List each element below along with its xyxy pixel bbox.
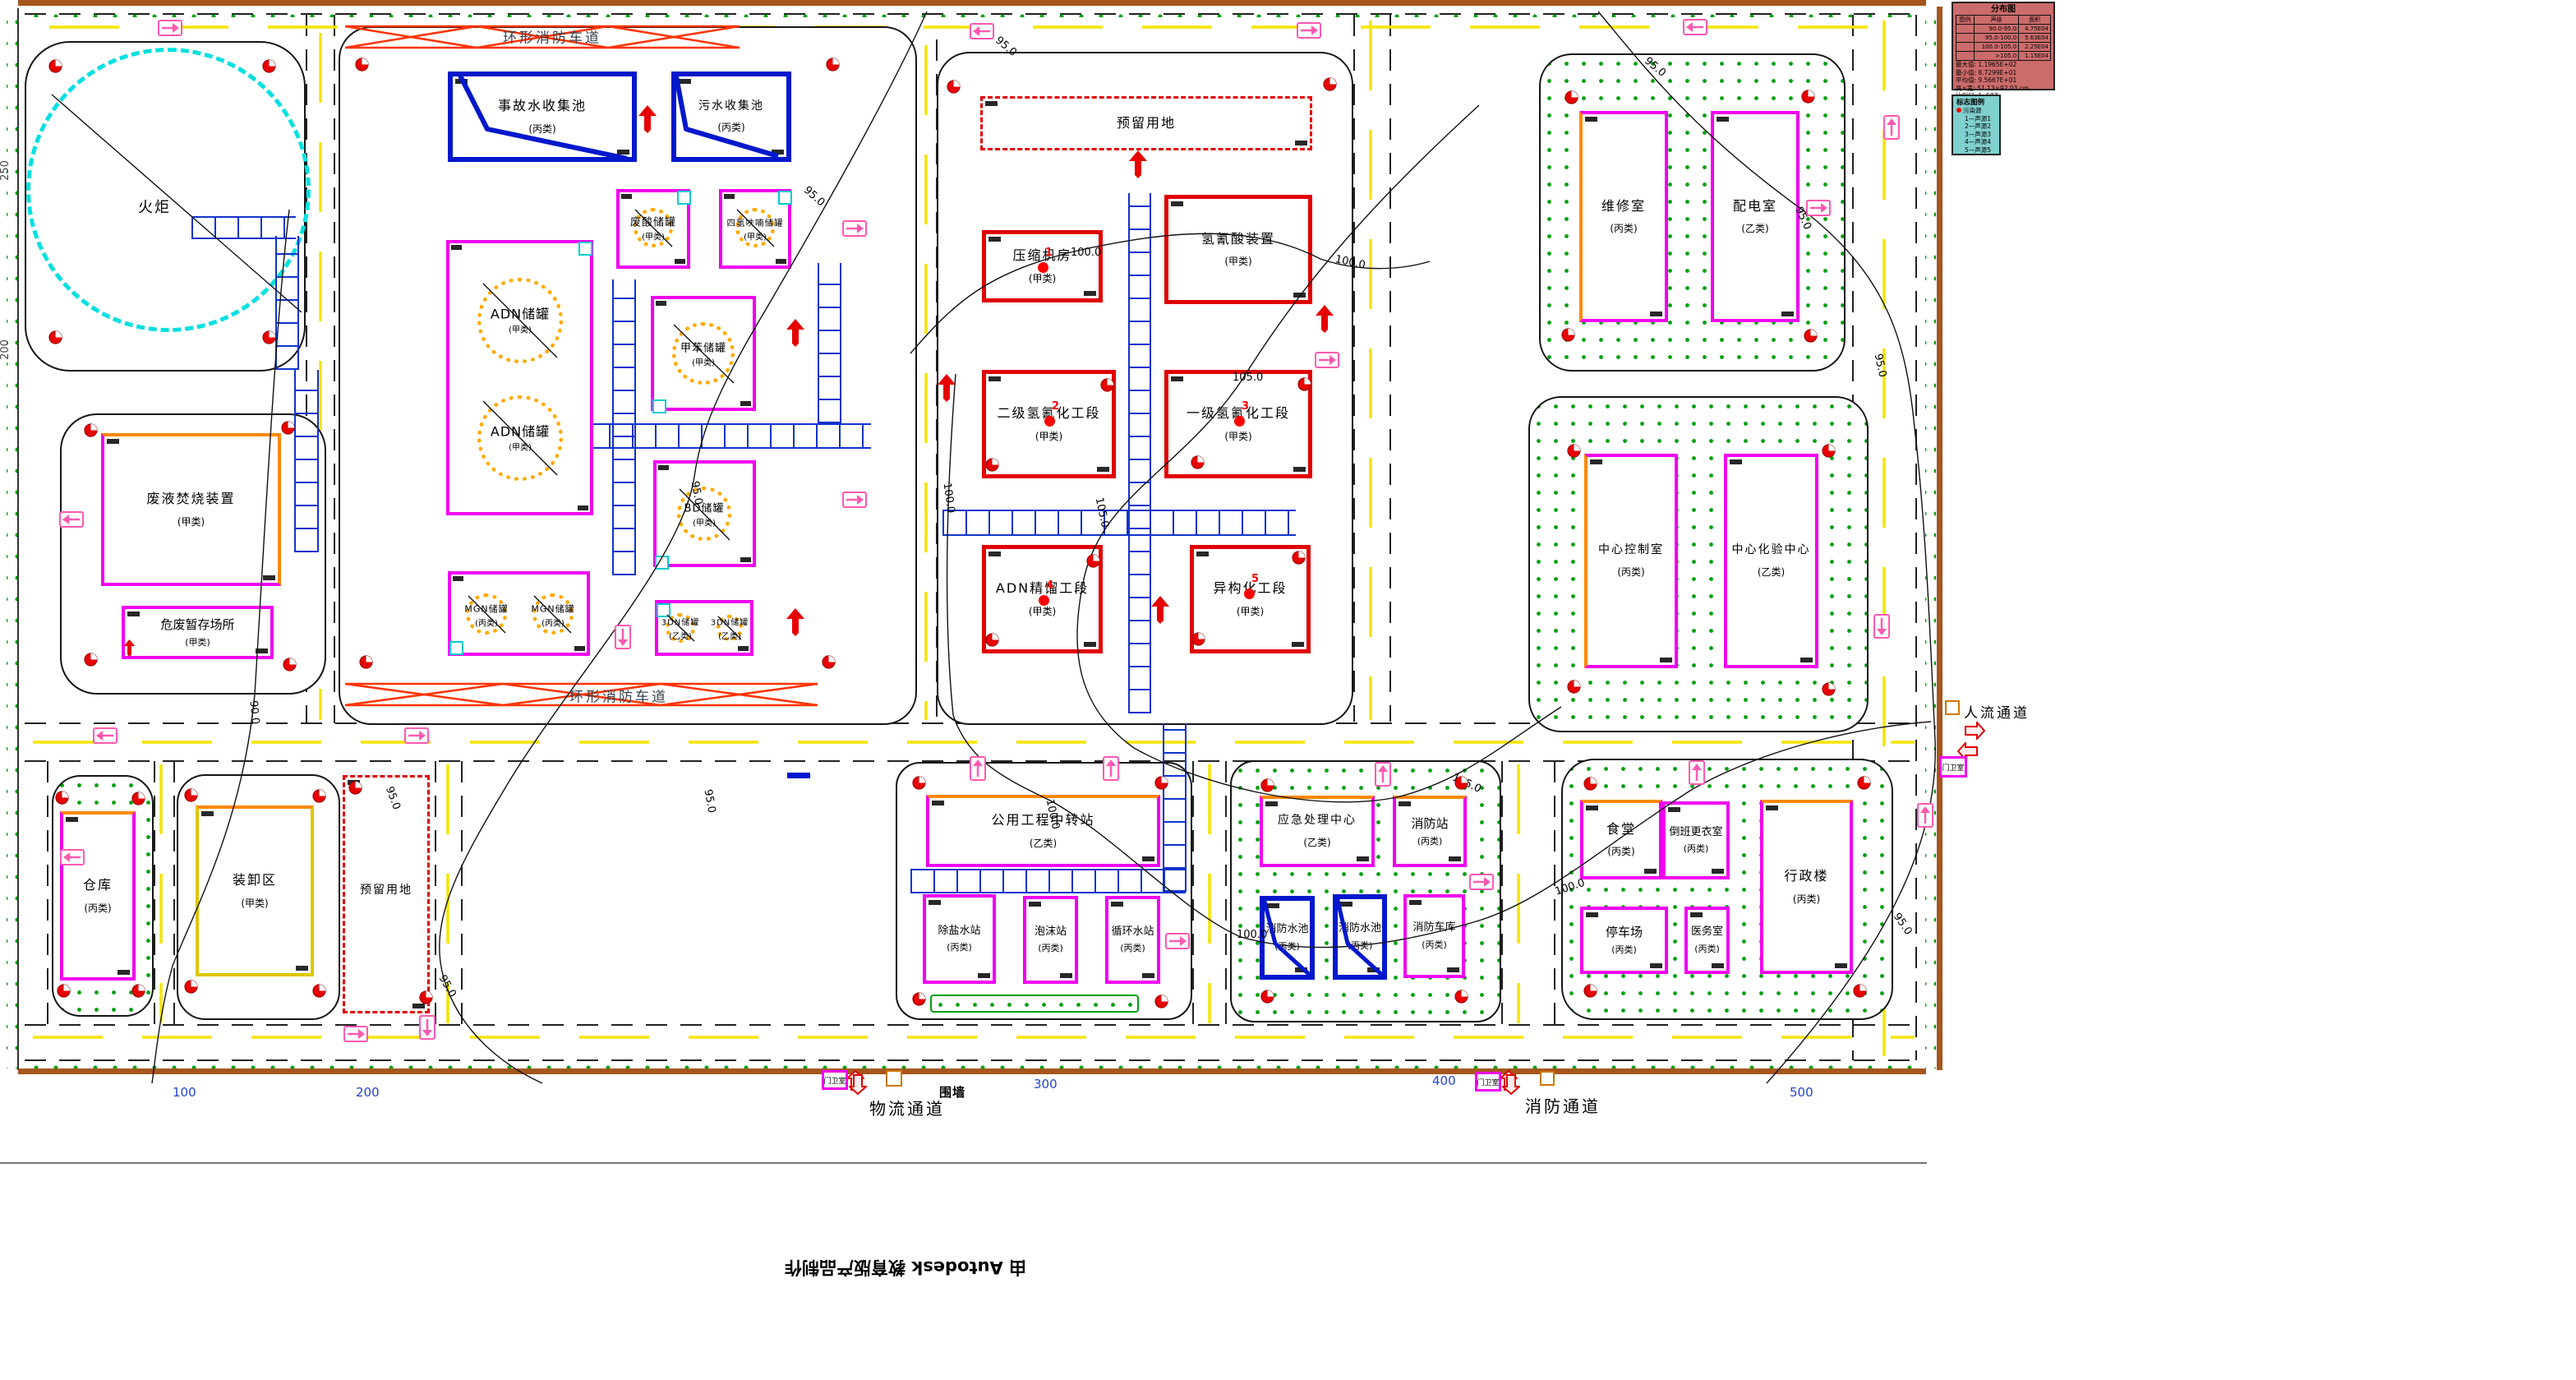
noise-source-dot-4 [1039, 595, 1049, 606]
north-boundary-wall [18, 0, 1926, 6]
noise-source-dot-1 [1038, 262, 1048, 273]
contour-label-95: 95.0 [436, 973, 459, 1000]
contour-label-95: 95.0 [702, 788, 718, 814]
building-utility-transfer: 公用工程中转站(乙类) [926, 795, 1160, 867]
pipe-rack [1128, 193, 1151, 713]
building-isomerization: 异构化工段(甲类) [1190, 545, 1311, 653]
tank-label-mgn-2: MGN储罐(丙类) [531, 598, 574, 629]
noise-source-number-2: 2 [1052, 400, 1059, 413]
building-accident-water-pool: 事故水收集池(丙类) [448, 72, 637, 162]
noise-source-number-5: 5 [1251, 573, 1259, 585]
contour-label-105: 105.0 [1233, 372, 1263, 384]
bund-corner-marker [657, 603, 670, 617]
south-boundary-wall [18, 1068, 1926, 1074]
gatehouse-south-2: 门卫室 [1475, 1072, 1501, 1092]
building-medical: 医务室(丙类) [1684, 907, 1730, 974]
bund-corner-marker [677, 191, 691, 205]
noise-level-table: 图例 声级 面积 90.0-95.04.75E04 95.0-100.05.63… [1956, 15, 2051, 61]
scale-tick-400: 400 [1432, 1073, 1456, 1088]
symbol-legend-title: 标志图例 [1956, 99, 1996, 107]
table-row: 90.0-95.04.75E04 [1956, 25, 2051, 34]
scale-tick-100: 100 [173, 1085, 196, 1100]
scale-tick-500: 500 [1790, 1085, 1813, 1100]
building-incinerator: 废液焚烧装置(甲类) [101, 433, 281, 586]
tank-label-waste-acid: 废酸储罐(甲类) [630, 212, 676, 242]
north-tree-row [21, 7, 1921, 17]
site-plan-canvas: 火炬 环形消防车道 环形消防车道 事故水收集池(丙类) 污水收集池(丙类) 废液… [0, 0, 2576, 1380]
contour-label-95: 95.0 [1872, 353, 1889, 378]
tank-label-adn-1: ADN储罐(甲类) [491, 305, 550, 335]
east-tree-row [1925, 8, 1936, 1068]
logistics-gate-marker [886, 1070, 902, 1087]
logistics-channel-label: 物流通道 [869, 1096, 945, 1119]
table-row: 95.0-100.05.63E04 [1956, 34, 2051, 43]
reserved-land-north: 预留用地 [980, 96, 1312, 150]
noise-source-dot-3 [1234, 416, 1245, 427]
pipe-rack [1163, 723, 1187, 892]
bund-corner-marker [655, 556, 669, 570]
tank-label-mgn-1: MGN储罐(丙类) [464, 598, 508, 629]
bund-corner-marker [578, 242, 592, 256]
source-item-5: 5—声源5 [1956, 146, 1996, 155]
contour-label-100: 100.0 [1237, 929, 1267, 941]
source-item-1: 1—声源1 [1956, 115, 1996, 123]
wall-label: 围墙 [939, 1083, 965, 1101]
noise-source-number-1: 1 [1045, 247, 1053, 259]
people-gate-marker [1945, 700, 1960, 715]
building-emergency-center: 应急处理中心(乙类) [1260, 796, 1375, 867]
ring-fire-road-label-top: 环形消防车道 [503, 26, 601, 47]
flare-label: 火炬 [138, 196, 171, 217]
pollution-source-icon [1956, 108, 1961, 113]
tank-label-3dn-2: 3DN储罐(乙类) [711, 612, 749, 642]
noise-source-number-4: 4 [1046, 579, 1053, 592]
tank-label-adn-2: ADN储罐(甲类) [491, 422, 550, 453]
utility-green-strip [930, 995, 1139, 1013]
pipe-rack [910, 869, 1186, 893]
symbol-legend: 标志图例 污染源 1—声源1 2—声源2 3—声源3 4—声源4 5—声源5 [1952, 95, 2001, 155]
building-demin-water: 除盐水站(丙类) [923, 894, 996, 984]
table-row: 100.0-105.02.25E04 [1956, 43, 2051, 52]
building-foam-station: 泡沫站(丙类) [1023, 896, 1078, 984]
source-item-4: 4—声源4 [1956, 138, 1996, 146]
bund-corner-marker [778, 191, 792, 205]
pipe-rack [942, 510, 1296, 536]
scale-tick-200: 200 [356, 1085, 380, 1100]
contour-label-100: 100.0 [1071, 247, 1101, 259]
tank-label-toluene: 甲苯储罐(甲类) [680, 338, 726, 368]
left-scale-200: 200 [0, 339, 12, 360]
gatehouse-east: 门卫室 [1939, 756, 1967, 778]
people-channel-label: 人流通道 [1964, 701, 2030, 722]
pipe-rack [818, 263, 841, 423]
scale-tick-300: 300 [1034, 1077, 1058, 1092]
building-maintenance-room: 维修室(丙类) [1579, 111, 1668, 322]
bund-corner-marker [652, 399, 666, 413]
building-canteen: 食堂(丙类) [1580, 800, 1662, 879]
legend-title: 分布图 [1956, 5, 2051, 14]
autodesk-educational-stamp: 由 Autodesk 教育版产品制作 [785, 1256, 1026, 1281]
building-shift-changing: 倒班更衣室(丙类) [1662, 801, 1730, 879]
table-row: >105.01.15E04 [1956, 52, 2051, 61]
gatehouse-south-1: 门卫室 [822, 1070, 848, 1090]
building-sewage-pool: 污水收集池(丙类) [671, 72, 791, 162]
stat-max: 最大值: 1.1965E+02 [1956, 61, 2051, 69]
ring-fire-road-label-bottom: 环形消防车道 [569, 685, 668, 706]
building-warehouse: 仓库(丙类) [60, 811, 136, 981]
building-fire-station: 消防站(丙类) [1393, 796, 1467, 867]
noise-distribution-legend: 分布图 图例 声级 面积 90.0-95.04.75E04 95.0-100.0… [1952, 2, 2055, 90]
pipe-rack [294, 370, 319, 552]
building-circulating-water: 循环水站(丙类) [1105, 896, 1160, 984]
left-scale-250: 250 [0, 160, 12, 181]
noise-source-dot-2 [1044, 416, 1055, 427]
pollution-source-entry: 污染源 [1956, 107, 1996, 115]
reserved-land-south: 预留用地 [343, 775, 430, 1013]
tank-label-thf: 四氢呋喃储罐(甲类) [727, 212, 784, 242]
building-hcn-unit: 氢氰酸装置(甲类) [1164, 195, 1312, 304]
bund-corner-marker [449, 641, 463, 655]
flare-circle [26, 48, 311, 332]
east-boundary-wall [1937, 7, 1942, 1070]
building-central-lab: 中心化验中心(乙类) [1724, 454, 1818, 668]
building-fire-water-pool-2: 消防水池(丙类) [1333, 894, 1387, 980]
building-parking: 停车场(丙类) [1580, 907, 1668, 974]
stat-size: 高×宽: 51.13×92.03 cm [1956, 85, 2051, 93]
building-central-control: 中心控制室(丙类) [1584, 454, 1678, 668]
noise-source-dot-5 [1244, 588, 1255, 599]
building-hazwaste-storage: 危废暂存场所(甲类) [122, 606, 274, 659]
source-item-3: 3—声源3 [1956, 131, 1996, 139]
sheet-divider-line [0, 1162, 1927, 1164]
noise-source-number-3: 3 [1242, 400, 1249, 413]
south-tree-row [21, 1058, 1921, 1068]
fire-gate-marker [1540, 1071, 1555, 1086]
building-fire-water-pool-1: 消防水池(丙类) [1260, 896, 1315, 980]
building-power-distribution: 配电室(乙类) [1711, 111, 1800, 322]
building-admin: 行政楼(丙类) [1760, 800, 1853, 974]
contour-label-90: 90.0 [247, 700, 261, 725]
source-item-2: 2—声源2 [1956, 122, 1996, 131]
building-loading-area: 装卸区(甲类) [196, 805, 314, 976]
fire-channel-label: 消防通道 [1525, 1093, 1601, 1117]
stat-min: 最小值: 8.7299E+01 [1956, 69, 2051, 77]
building-fire-garage: 消防车库(丙类) [1403, 894, 1465, 978]
contour-label-95: 95.0 [1891, 911, 1915, 937]
blue-marker-bar [787, 773, 810, 778]
pipe-rack [275, 236, 299, 370]
stat-avg: 平均值: 9.5667E+01 [1956, 76, 2051, 85]
